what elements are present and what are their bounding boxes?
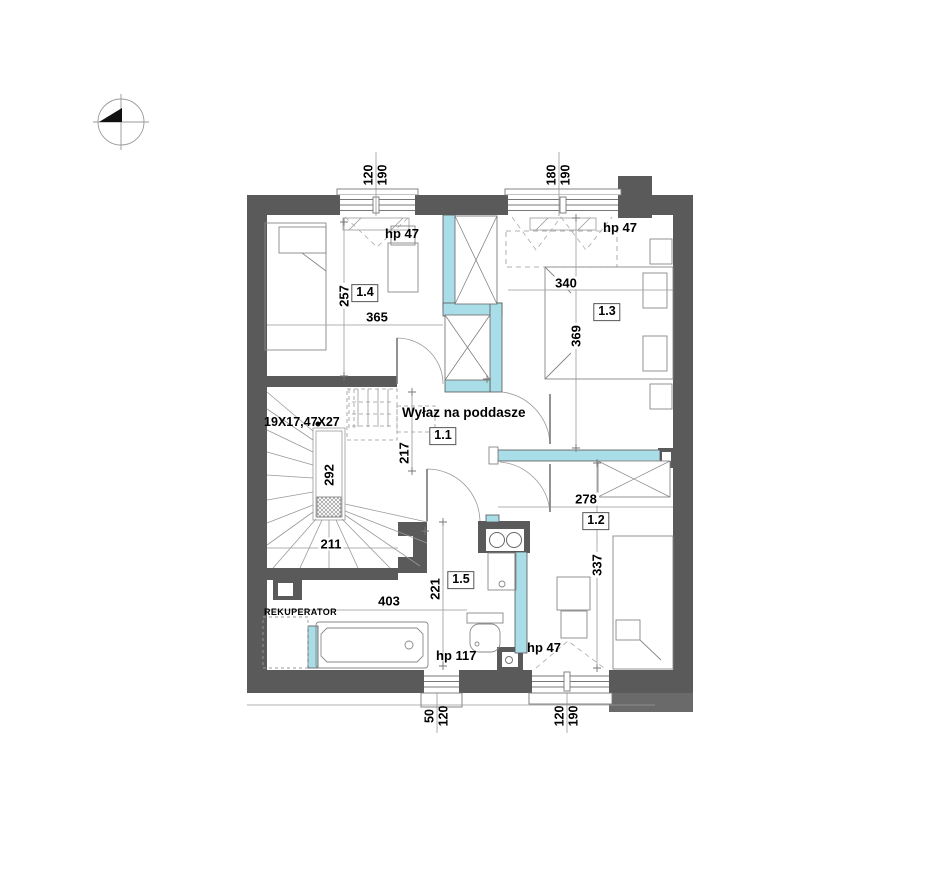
room-label-1-1: 1.1 [429,427,456,445]
window-dim-value: 120 [553,706,567,727]
dim-278: 278 [573,493,599,506]
sill-label-bottom-middle: hp 117 [436,649,476,662]
window-dim-value: 190 [376,165,390,186]
room-label-1-4: 1.4 [351,284,378,302]
sill-label-bottom-right: hp 47 [527,641,561,654]
plan-linework [0,0,940,892]
window-dim-value: 50 [423,706,437,727]
dim-211: 211 [319,538,344,551]
window-dim-bottom-right: 120 190 [553,706,582,727]
north-arrow [93,94,149,150]
door-jamb [489,447,498,464]
dim-365: 365 [364,311,390,324]
dim-337: 337 [591,552,604,578]
dim-292: 292 [323,462,336,488]
dim-403: 403 [376,595,402,608]
rekuperator-label: REKUPERATOR [264,608,337,617]
dim-221: 221 [429,576,442,602]
window-dim-value: 120 [362,165,376,186]
dim-369: 369 [570,323,583,349]
window-dim-bottom-middle: 50 120 [423,706,452,727]
window-dim-value: 180 [545,165,559,186]
dim-340: 340 [553,277,579,290]
sill-label-top-right: hp 47 [603,221,637,234]
window-dim-top-left: 120 190 [362,165,391,186]
stairs-spec: 19X17,47X27 [264,416,340,429]
dim-257: 257 [338,283,351,309]
dim-217: 217 [398,440,411,466]
room-label-1-3: 1.3 [593,303,620,321]
attic-hatch-note: Wyłaz na poddasze [402,406,526,420]
window-dim-value: 190 [559,165,573,186]
window-dim-top-right: 180 190 [545,165,574,186]
window-dim-value: 190 [567,706,581,727]
wardrobe-12 [598,461,670,497]
wardrobe-13-dashed [506,231,617,267]
room-label-1-2: 1.2 [582,512,609,530]
room-label-1-5: 1.5 [447,571,474,589]
floor-plan: 1.1 1.2 1.3 1.4 1.5 Wyłaz na poddasze 19… [0,0,940,892]
window-dim-value: 120 [437,706,451,727]
sill-label-top-left: hp 47 [385,227,419,240]
